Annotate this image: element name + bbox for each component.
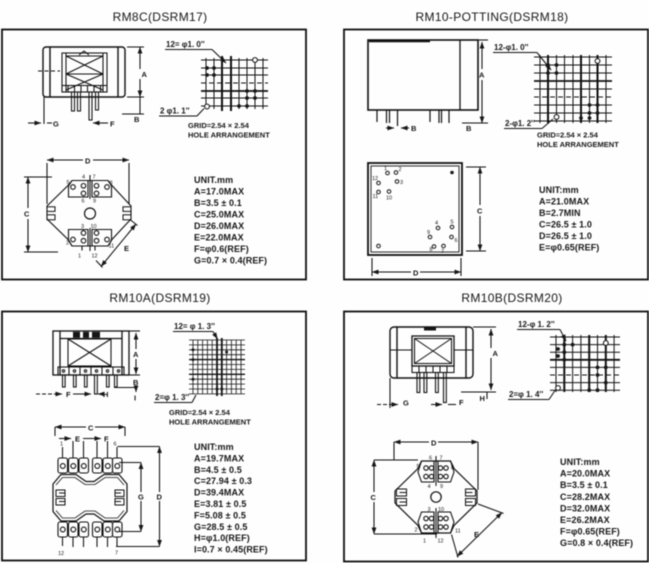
svg-text:8: 8 [110, 181, 113, 187]
svg-text:12= φ1. 0'': 12= φ1. 0'' [166, 40, 205, 49]
svg-text:8: 8 [430, 247, 433, 253]
svg-text:9: 9 [427, 230, 430, 236]
svg-text:6: 6 [82, 199, 85, 205]
svg-text:A=21.0MAX: A=21.0MAX [539, 197, 589, 207]
svg-text:12: 12 [372, 176, 378, 182]
svg-text:7: 7 [93, 175, 96, 181]
svg-text:A: A [493, 349, 499, 358]
svg-text:E: E [124, 244, 129, 253]
svg-text:3: 3 [428, 507, 431, 513]
svg-text:F=5.08 ± 0.5: F=5.08 ± 0.5 [194, 510, 246, 520]
svg-text:7: 7 [441, 249, 444, 255]
svg-text:C=26.5 ± 1.0: C=26.5 ± 1.0 [539, 220, 592, 230]
svg-text:B=3.5 ± 0.1: B=3.5 ± 0.1 [560, 480, 608, 490]
svg-text:9: 9 [93, 199, 96, 205]
svg-text:RM8C(DSRM17): RM8C(DSRM17) [113, 10, 208, 24]
svg-text:10: 10 [386, 196, 392, 202]
svg-text:D: D [85, 157, 91, 166]
svg-text:2: 2 [66, 241, 69, 247]
svg-text:F=φ0.65(REF): F=φ0.65(REF) [560, 527, 620, 537]
svg-text:C: C [477, 207, 483, 216]
svg-text:A=20.0MAX: A=20.0MAX [560, 469, 610, 479]
svg-text:D=39.4MAX: D=39.4MAX [194, 488, 244, 498]
svg-text:B: B [133, 378, 139, 387]
svg-text:C=27.94 ± 0.3: C=27.94 ± 0.3 [194, 476, 252, 486]
svg-text:UNIT:mm: UNIT:mm [194, 442, 234, 452]
svg-text:2 φ1. 1'': 2 φ1. 1'' [160, 107, 190, 116]
svg-text:B=3.5 ± 0.1: B=3.5 ± 0.1 [194, 198, 242, 208]
svg-text:2-φ1. 2'': 2-φ1. 2'' [505, 119, 535, 128]
svg-text:D=26.0MAX: D=26.0MAX [194, 221, 244, 231]
svg-text:7: 7 [115, 551, 118, 557]
svg-text:H: H [103, 390, 108, 399]
svg-text:1: 1 [384, 166, 387, 172]
svg-text:2: 2 [415, 528, 418, 534]
svg-text:5: 5 [67, 180, 70, 186]
svg-text:3: 3 [81, 224, 84, 230]
svg-text:4: 4 [435, 221, 438, 227]
svg-text:12: 12 [438, 539, 444, 545]
svg-text:10: 10 [438, 507, 444, 513]
svg-text:11: 11 [455, 529, 461, 535]
svg-text:B=2.7MIN: B=2.7MIN [539, 208, 581, 218]
svg-text:2=φ 1. 3'': 2=φ 1. 3'' [155, 393, 189, 402]
svg-text:G=0.8 × 0.4(REF): G=0.8 × 0.4(REF) [560, 538, 633, 548]
svg-text:E=3.81 ± 0.5: E=3.81 ± 0.5 [194, 499, 246, 509]
svg-text:6: 6 [429, 456, 432, 462]
svg-text:D: D [157, 493, 163, 502]
svg-text:11: 11 [373, 194, 379, 200]
svg-text:RM10A(DSRM19): RM10A(DSRM19) [109, 291, 210, 305]
svg-text:D: D [413, 269, 419, 278]
svg-text:5: 5 [417, 464, 420, 470]
svg-text:G=0.7 × 0.4(REF): G=0.7 × 0.4(REF) [194, 256, 267, 266]
svg-text:F: F [104, 435, 109, 444]
svg-text:D=32.0MAX: D=32.0MAX [560, 503, 610, 513]
svg-text:3: 3 [400, 180, 403, 186]
svg-text:I: I [134, 394, 136, 403]
svg-text:RM10-POTTING(DSRM18): RM10-POTTING(DSRM18) [415, 10, 568, 24]
svg-text:8: 8 [451, 465, 454, 471]
svg-text:G: G [53, 120, 59, 129]
svg-text:12-φ1. 0'': 12-φ1. 0'' [494, 43, 529, 52]
svg-text:A: A [133, 350, 139, 359]
svg-text:2=φ 1. 4'': 2=φ 1. 4'' [509, 390, 543, 399]
svg-text:11: 11 [109, 244, 115, 250]
svg-text:12= φ 1. 3'': 12= φ 1. 3'' [174, 322, 215, 331]
svg-text:UNIT:mm: UNIT:mm [560, 457, 600, 467]
svg-text:I=0.7 × 0.45(REF): I=0.7 × 0.45(REF) [194, 545, 268, 555]
svg-text:G: G [403, 399, 409, 408]
svg-text:C: C [371, 493, 377, 502]
svg-text:12: 12 [58, 551, 64, 557]
svg-text:4: 4 [82, 175, 85, 181]
svg-text:C=28.2MAX: C=28.2MAX [560, 492, 610, 502]
svg-text:H: H [480, 394, 485, 403]
svg-text:A: A [479, 71, 485, 80]
svg-text:6: 6 [455, 238, 458, 244]
svg-text:F: F [110, 120, 115, 129]
svg-text:4: 4 [428, 484, 431, 490]
svg-text:E=22.0MAX: E=22.0MAX [194, 233, 244, 243]
svg-text:E: E [474, 530, 479, 539]
svg-text:B=4.5 ± 0.5: B=4.5 ± 0.5 [194, 465, 242, 475]
svg-text:D: D [431, 439, 437, 448]
svg-text:E: E [75, 435, 80, 444]
svg-text:7: 7 [440, 456, 443, 462]
svg-text:E=26.2MAX: E=26.2MAX [560, 515, 610, 525]
svg-text:UNIT.mm: UNIT.mm [194, 175, 233, 185]
svg-text:B: B [134, 115, 140, 124]
svg-text:C=25.0MAX: C=25.0MAX [194, 210, 244, 220]
svg-text:F: F [66, 390, 71, 399]
svg-text:1: 1 [423, 539, 426, 545]
svg-text:F: F [459, 398, 464, 407]
svg-text:10: 10 [91, 224, 97, 230]
svg-text:HOLE ARRANGEMENT: HOLE ARRANGEMENT [537, 140, 619, 149]
svg-text:H=φ1.0(REF): H=φ1.0(REF) [194, 533, 250, 543]
svg-text:F=φ0.6(REF): F=φ0.6(REF) [194, 244, 249, 254]
svg-text:12: 12 [92, 254, 98, 260]
svg-text:RM10B(DSRM20): RM10B(DSRM20) [461, 291, 562, 305]
svg-text:5: 5 [451, 220, 454, 226]
svg-text:G=28.5 ± 0.5: G=28.5 ± 0.5 [194, 522, 247, 532]
svg-text:B: B [466, 124, 472, 133]
svg-text:C: C [24, 210, 30, 219]
svg-text:C: C [88, 424, 94, 433]
svg-text:GRID=2.54 × 2.54: GRID=2.54 × 2.54 [188, 121, 250, 130]
svg-text:1: 1 [60, 442, 63, 448]
svg-text:A=19.7MAX: A=19.7MAX [194, 453, 244, 463]
svg-text:1: 1 [78, 254, 81, 260]
svg-text:G: G [138, 493, 144, 502]
svg-text:6: 6 [114, 442, 117, 448]
svg-text:GRID=2.54 × 2.54: GRID=2.54 × 2.54 [537, 131, 599, 140]
svg-text:A=17.0MAX: A=17.0MAX [194, 187, 244, 197]
svg-text:E=φ0.65(REF): E=φ0.65(REF) [539, 243, 599, 253]
svg-text:UNIT:mm: UNIT:mm [539, 185, 579, 195]
svg-text:HOLE ARRANGEMENT: HOLE ARRANGEMENT [188, 131, 270, 140]
svg-text:D=26.5 ± 1.0: D=26.5 ± 1.0 [539, 231, 592, 241]
svg-text:12-φ 1. 2'': 12-φ 1. 2'' [518, 320, 555, 329]
svg-text:B: B [411, 124, 417, 133]
svg-text:2: 2 [399, 167, 402, 173]
svg-text:9: 9 [440, 484, 443, 490]
svg-text:HOLE ARRANGEMENT: HOLE ARRANGEMENT [169, 418, 251, 427]
svg-text:A: A [142, 70, 148, 79]
svg-text:GRID=2.54 × 2.54: GRID=2.54 × 2.54 [169, 408, 231, 417]
